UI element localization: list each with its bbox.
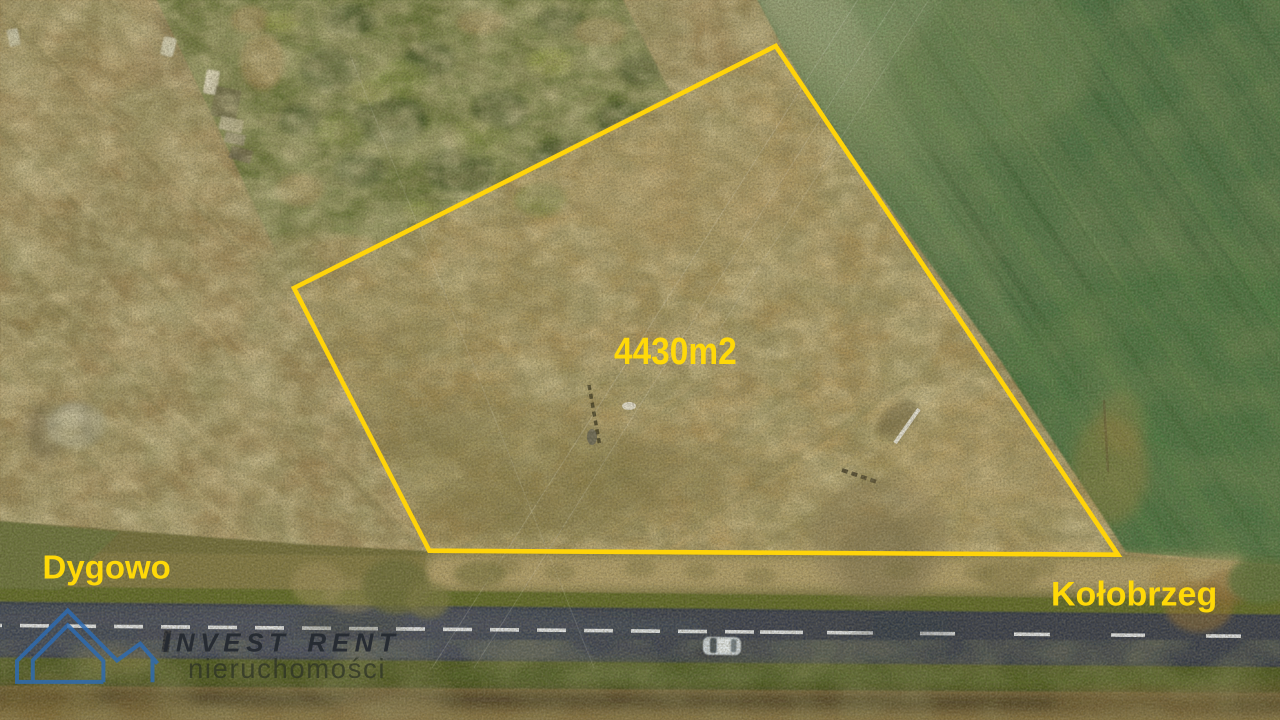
svg-text:nieruchomości: nieruchomości (188, 653, 386, 684)
svg-text:Dygowo: Dygowo (43, 549, 171, 586)
svg-text:Kołobrzeg: Kołobrzeg (1051, 576, 1217, 614)
svg-text:4430m2: 4430m2 (614, 330, 737, 372)
